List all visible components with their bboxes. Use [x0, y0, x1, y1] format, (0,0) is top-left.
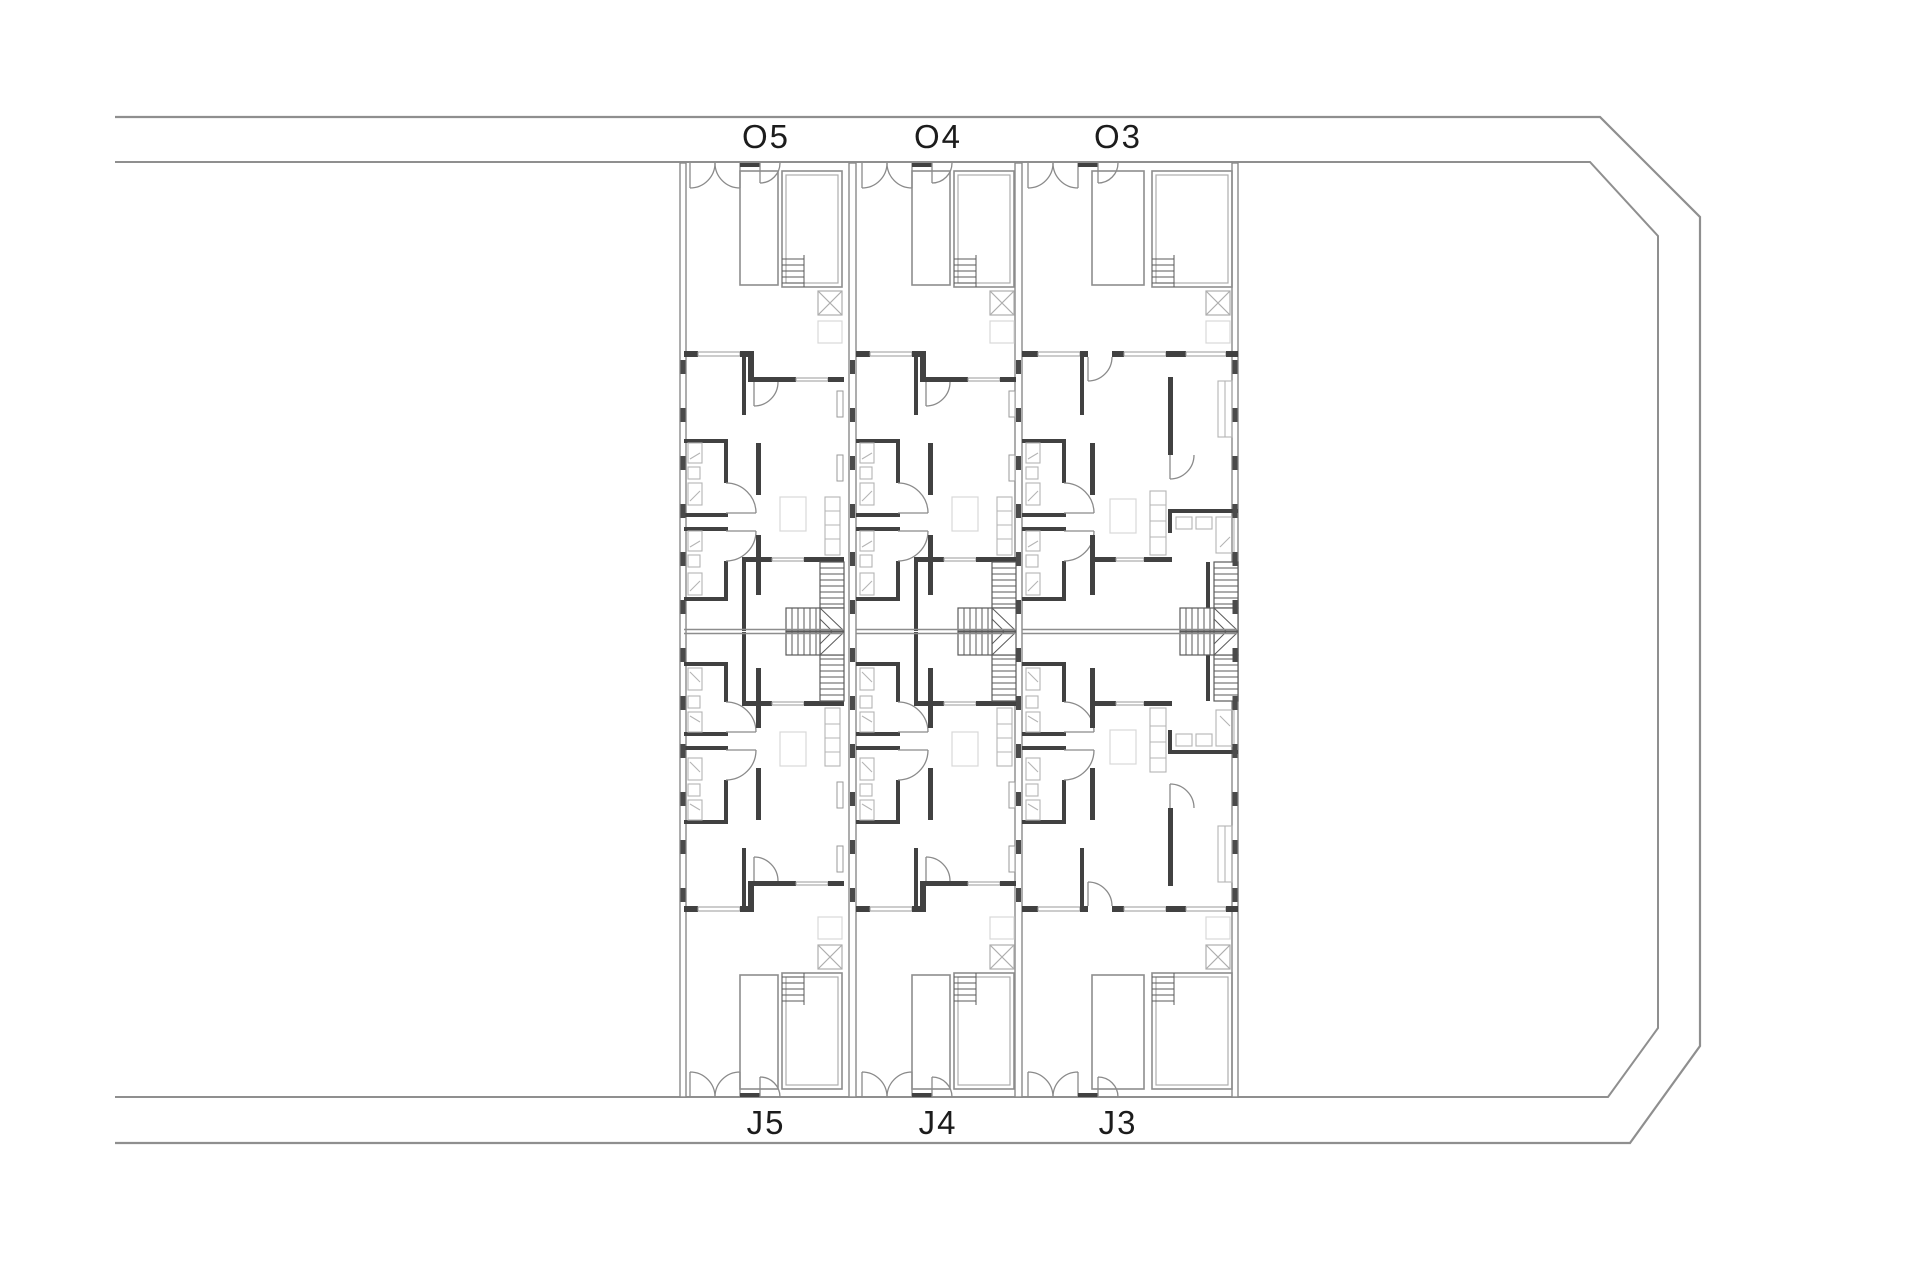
unit-label-J3: J3 [1099, 1104, 1138, 1141]
garden-J5 [690, 917, 842, 1097]
garden-O5 [690, 163, 842, 343]
unit-J5 [684, 632, 844, 912]
unit-label-O3: O3 [1094, 118, 1142, 155]
unit-O5 [684, 351, 844, 631]
garden-O4 [862, 163, 1014, 343]
unit-J4 [856, 632, 1016, 912]
unit-label-J4: J4 [919, 1104, 958, 1141]
unit-label-O4: O4 [914, 118, 962, 155]
party-wall-1 [849, 163, 856, 1097]
unit-O3 [1022, 351, 1238, 631]
floor-plan-page: O5 O4 O3 J5 J4 J3 [0, 0, 1920, 1280]
floor-plan-drawing: O5 O4 O3 J5 J4 J3 [0, 0, 1920, 1280]
garden-O3 [1028, 163, 1232, 343]
unit-O4 [856, 351, 1016, 631]
garden-J4 [862, 917, 1014, 1097]
unit-label-J5: J5 [747, 1104, 786, 1141]
unit-J3 [1022, 632, 1238, 912]
garden-J3 [1028, 917, 1232, 1097]
unit-label-O5: O5 [742, 118, 790, 155]
